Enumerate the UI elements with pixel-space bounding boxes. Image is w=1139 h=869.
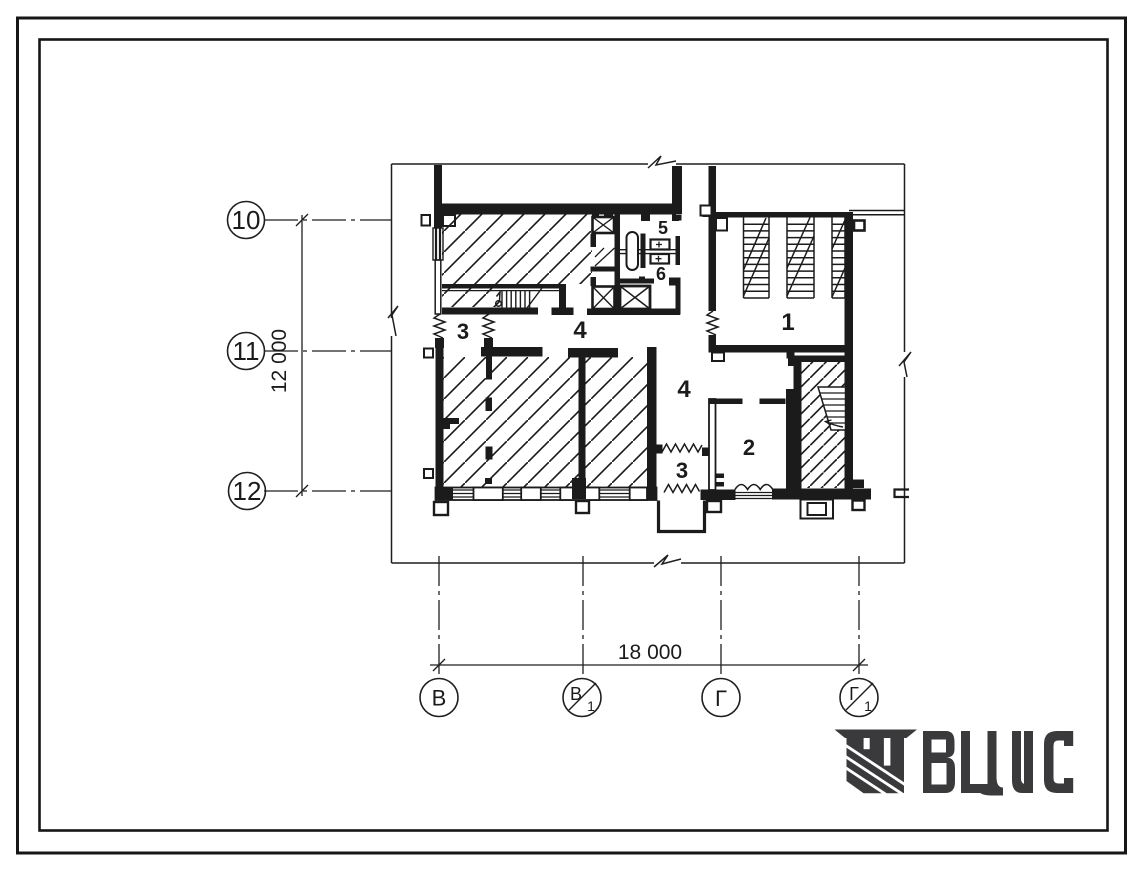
svg-text:10: 10 [232, 205, 261, 235]
svg-text:11: 11 [233, 336, 260, 366]
svg-text:В: В [432, 686, 447, 711]
svg-text:2: 2 [743, 435, 755, 460]
svg-text:12 000: 12 000 [268, 329, 291, 393]
svg-text:4: 4 [677, 376, 691, 403]
svg-text:Г: Г [849, 684, 859, 704]
svg-text:3: 3 [676, 458, 688, 483]
svg-text:18 000: 18 000 [618, 641, 682, 664]
svg-text:5: 5 [658, 218, 668, 238]
svg-text:1: 1 [587, 698, 595, 714]
svg-text:12: 12 [233, 476, 262, 506]
svg-text:В: В [570, 684, 582, 704]
svg-text:6: 6 [656, 264, 666, 284]
svg-text:4: 4 [573, 317, 587, 344]
svg-text:1: 1 [781, 309, 794, 336]
svg-text:3: 3 [457, 319, 469, 344]
svg-text:Г: Г [715, 686, 727, 711]
svg-text:1: 1 [864, 698, 872, 714]
